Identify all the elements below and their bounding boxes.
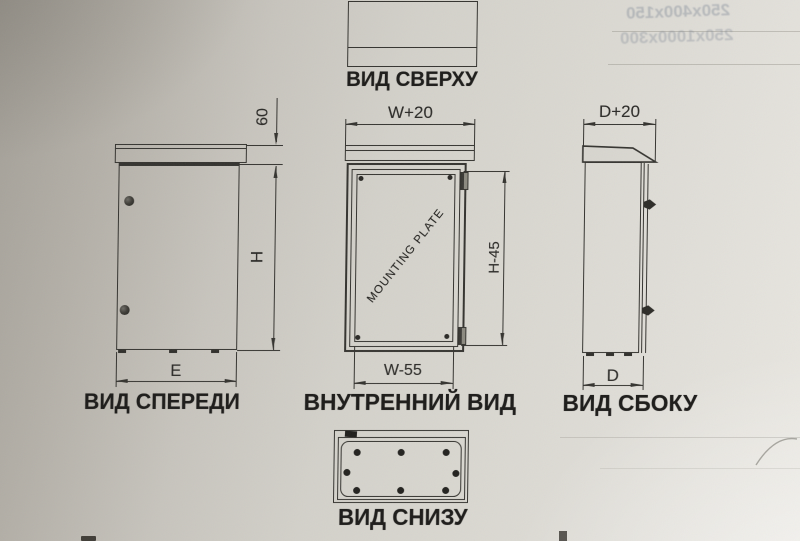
foot-mark [169,350,177,353]
cable-hole [397,487,404,494]
foot-mark [211,350,219,353]
arrowhead-down [273,133,277,145]
arrowhead-right [441,381,453,385]
bottom-hinge-mark [345,431,357,438]
arrowhead-right [225,379,237,383]
side-hinge-top [643,197,656,212]
foot-mark [586,353,594,356]
dim-w55-label: W-55 [363,362,443,380]
cable-hole [397,449,404,456]
top-view-label: ВИД СВЕРХУ [334,68,490,92]
arrowhead-left [583,122,595,126]
dim-d-label: D [583,366,643,386]
arrowhead-down [271,338,275,350]
front-view-roof [115,144,247,163]
foot-mark [624,353,632,356]
arrowhead-right [463,122,475,126]
top-view-roof-edge-line [348,47,476,48]
plate-screw [355,335,360,340]
extension-line [247,145,283,146]
arrowhead-left [116,379,128,383]
side-view-body [582,162,642,353]
internal-view-roof-line [346,150,474,151]
arrowhead-right [643,122,655,126]
dim-w20-line [345,124,475,125]
arrowhead-down [500,333,504,345]
photographed-drawing-page: 250x400x150 250x1000x300 ВИД СВЕРХУ [0,0,800,541]
arrowhead-left [354,381,366,385]
side-view-door-edge-line [645,164,649,353]
foot-mark [118,350,126,353]
plate-screw [447,175,452,180]
bottom-view-label: ВИД СНИЗУ [330,504,476,531]
cable-hole [353,487,360,494]
arrowhead-up [273,166,277,178]
front-view-door [116,163,240,350]
dim-e-line [116,381,237,382]
dim-d20-label: D+20 [580,102,658,122]
side-view-label: ВИД СБОКУ [559,390,700,417]
dim-60-label: 60 [254,100,272,134]
dim-h45-label: H-45 [486,238,504,278]
extension-line [461,345,507,346]
dim-h-line [273,166,277,350]
enclosure-drawing: ВИД СВЕРХУ 60 H [0,0,800,541]
plate-screw [444,334,449,339]
front-view-label: ВИД СПЕРЕДИ [82,389,242,415]
extension-line [240,164,283,165]
cable-hole [343,469,350,476]
extension-line [237,350,280,351]
foot-mark [606,353,614,356]
cable-hole [452,470,459,477]
arrowhead-left [345,122,357,126]
cable-hole [442,449,449,456]
dim-h-label: H [247,240,267,274]
dim-w20-label: W+20 [345,103,475,123]
hinge [458,327,466,345]
front-view-roof-line [116,148,246,149]
top-view-outline [347,1,478,67]
cable-hole [442,487,449,494]
side-hinge-bottom [642,303,655,318]
dim-e-label: E [153,362,199,381]
arrowhead-up [502,171,506,183]
extension-line [453,346,455,389]
internal-view-label: ВНУТРЕННИЙ ВИД [303,389,512,416]
internal-view-roof [345,145,475,161]
dim-w55-line [354,383,453,384]
cable-hole [353,449,360,456]
